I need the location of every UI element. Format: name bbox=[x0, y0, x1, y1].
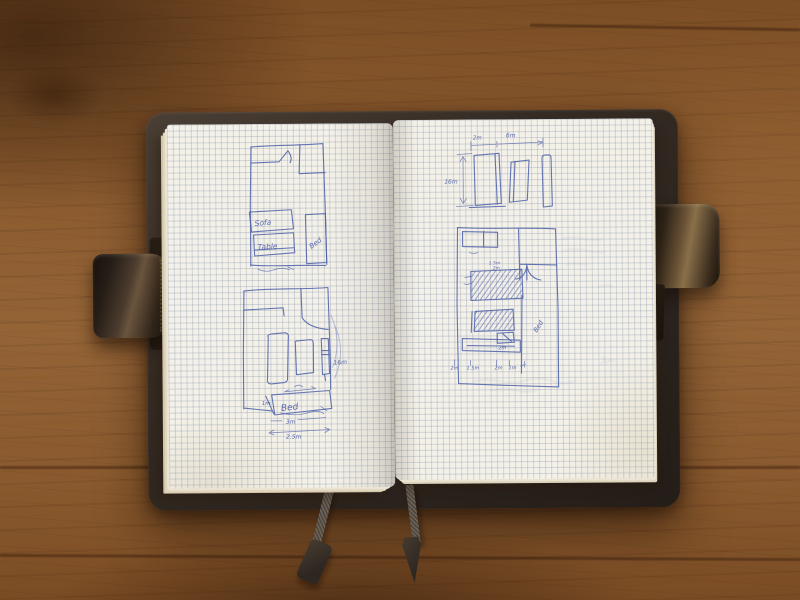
floor-plan-bottom-left: Bed 1m 16m 3m 2.5m bbox=[243, 287, 348, 441]
left-page-sketches: Sofa Table Bed bbox=[167, 123, 396, 489]
sofa-label: Sofa bbox=[254, 218, 272, 229]
elevation-sketch: 2m 6m 16m bbox=[444, 132, 553, 208]
bottom-dim-3: 2m bbox=[494, 365, 502, 371]
bookmark-tip bbox=[401, 536, 424, 583]
right-page: 2m 6m 16m bbox=[393, 118, 656, 480]
dim-upper-2: 2m bbox=[493, 265, 501, 271]
left-page: Sofa Table Bed bbox=[167, 123, 396, 489]
dim-6m: 6m bbox=[506, 132, 516, 139]
hatched-area-2 bbox=[474, 309, 514, 331]
dim-2m-top: 2m bbox=[473, 135, 482, 141]
dim-inner-2m: 2m bbox=[498, 345, 506, 351]
bed-label-top: Bed bbox=[308, 236, 324, 251]
bookmark-tip bbox=[295, 538, 333, 586]
closure-strap bbox=[645, 204, 720, 289]
bed-label-bottom: Bed bbox=[280, 402, 299, 414]
pen-loop bbox=[93, 254, 170, 339]
bottom-dim-4: 1m bbox=[508, 365, 516, 371]
floor-plan-right: Bed 1.5m 2m 2m 2m 1.5m 2m 1m bbox=[449, 227, 558, 388]
bottom-dim-2: 1.5m bbox=[466, 365, 479, 371]
bottom-dim-1: 2m bbox=[450, 366, 458, 372]
dim-1m: 1m bbox=[262, 401, 271, 407]
dim-16m: 16m bbox=[333, 359, 347, 367]
floor-plan-top-left: Sofa Table Bed bbox=[249, 144, 327, 272]
bed-label-right: Bed bbox=[532, 318, 546, 334]
right-page-sketches: 2m 6m 16m bbox=[393, 118, 656, 480]
pen-doodle bbox=[321, 338, 329, 380]
dim-2-5m: 2.5m bbox=[286, 434, 302, 441]
table-label: Table bbox=[257, 242, 278, 252]
open-notebook: Sofa Table Bed bbox=[0, 0, 800, 600]
hatched-area-1 bbox=[471, 269, 523, 300]
dim-3m: 3m bbox=[286, 419, 296, 426]
photo-scene: Sofa Table Bed bbox=[0, 0, 800, 600]
dim-16m-vert: 16m bbox=[444, 179, 458, 186]
